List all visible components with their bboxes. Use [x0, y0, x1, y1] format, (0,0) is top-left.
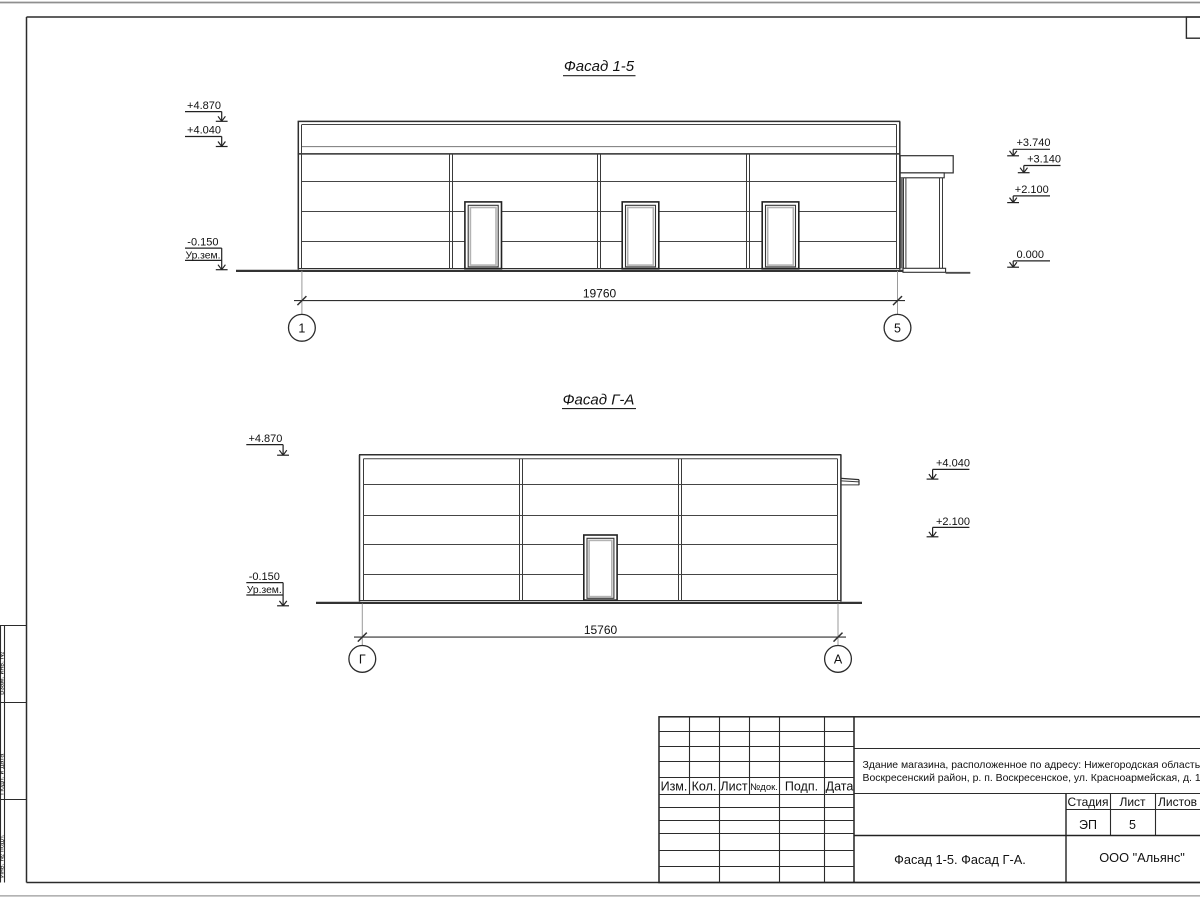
svg-text:0.000: 0.000: [1017, 249, 1045, 261]
svg-text:Изм.: Изм.: [661, 780, 688, 794]
svg-text:Листов: Листов: [1158, 795, 1197, 809]
svg-text:+2.100: +2.100: [1015, 184, 1049, 196]
svg-text:Кол.: Кол.: [692, 780, 717, 794]
svg-text:Г: Г: [359, 652, 366, 666]
svg-text:5: 5: [1129, 818, 1136, 832]
svg-text:Фасад 1-5: Фасад 1-5: [564, 58, 635, 75]
svg-text:Ур.зем.: Ур.зем.: [186, 250, 221, 261]
svg-text:Здание магазина, расположенное: Здание магазина, расположенное по адресу…: [863, 759, 1200, 771]
svg-text:Ур.зем.: Ур.зем.: [247, 585, 282, 596]
svg-text:+3.740: +3.740: [1017, 137, 1051, 149]
svg-text:+4.870: +4.870: [248, 433, 282, 445]
svg-text:Подп.: Подп.: [785, 780, 818, 794]
svg-text:Лист: Лист: [1119, 795, 1146, 809]
svg-text:ЭП: ЭП: [1079, 818, 1097, 832]
svg-text:+3.140: +3.140: [1027, 154, 1061, 166]
svg-text:Фасад Г-А: Фасад Г-А: [563, 392, 635, 409]
svg-text:Воскресенский район, р. п. Вос: Воскресенский район, р. п. Воскресенское…: [863, 773, 1200, 784]
svg-text:№док.: №док.: [750, 782, 778, 793]
svg-text:+4.040: +4.040: [187, 125, 221, 137]
svg-text:Дата: Дата: [826, 780, 854, 794]
svg-text:5: 5: [894, 321, 901, 335]
svg-text:Инв. № подл.: Инв. № подл.: [0, 834, 6, 878]
svg-text:-0.150: -0.150: [187, 236, 218, 248]
svg-text:+4.870: +4.870: [187, 100, 221, 112]
svg-text:+2.100: +2.100: [936, 516, 970, 528]
svg-text:А: А: [834, 652, 843, 666]
svg-text:Фасад 1-5. Фасад Г-А.: Фасад 1-5. Фасад Г-А.: [894, 852, 1026, 867]
svg-text:Взам. инв. №: Взам. инв. №: [0, 652, 6, 695]
svg-text:Подп. и дата: Подп. и дата: [0, 754, 6, 795]
svg-text:Стадия: Стадия: [1068, 795, 1109, 809]
svg-text:-0.150: -0.150: [249, 571, 280, 583]
svg-text:15760: 15760: [584, 623, 618, 637]
svg-text:Лист: Лист: [720, 780, 747, 794]
svg-text:19760: 19760: [583, 287, 617, 301]
svg-text:1: 1: [298, 321, 305, 335]
svg-text:ООО "Альянс": ООО "Альянс": [1099, 850, 1185, 865]
svg-text:+4.040: +4.040: [936, 457, 970, 469]
